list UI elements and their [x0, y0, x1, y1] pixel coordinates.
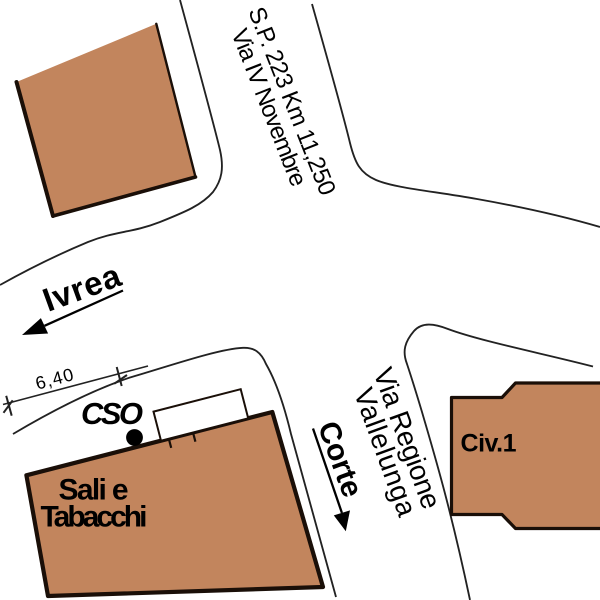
svg-text:CSO: CSO [81, 396, 143, 431]
svg-text:Tabacchi: Tabacchi [41, 501, 148, 534]
svg-text:Civ.1: Civ.1 [461, 430, 517, 458]
